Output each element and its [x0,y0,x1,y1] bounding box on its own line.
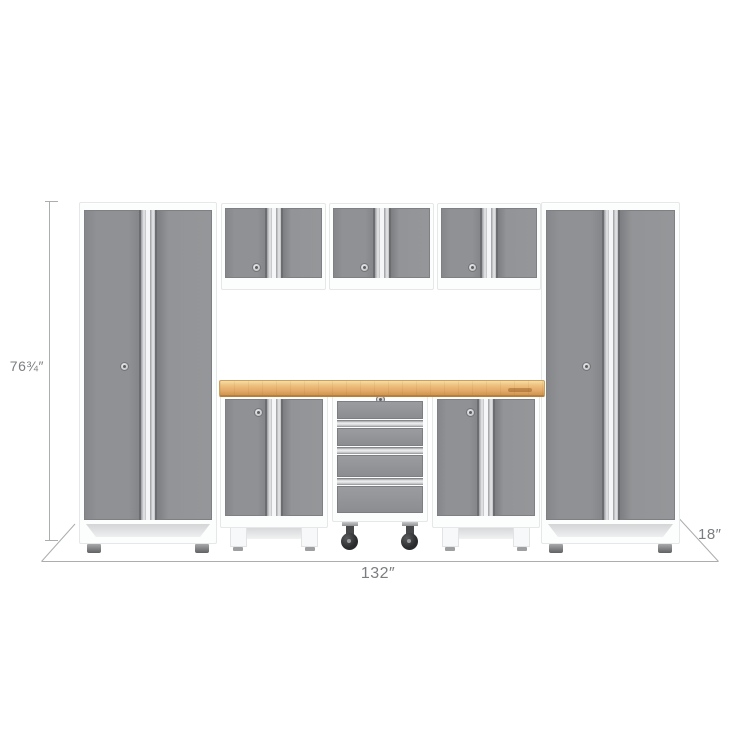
drawer-handle-bar [337,447,423,454]
tall-locker-right [541,202,680,553]
wall-cabinet-2 [329,203,434,290]
width-dimension-label: 132″ [338,565,418,583]
drawer-face-2 [337,428,423,446]
cabinet-leg [230,528,247,547]
leveling-foot [87,544,101,553]
door-handles [265,399,283,516]
right-door [283,399,323,516]
caster-wheel-tire [341,533,358,550]
wall-cabinet-1 [221,203,326,290]
toe-kick-shadow [86,524,210,537]
right-door [498,208,537,278]
door-handles [139,210,157,520]
caster-wheel [339,522,361,550]
garage-cabinet-set-diagram: 76¾″ 132″ 18″ [0,0,755,755]
leveling-foot [658,544,672,553]
benchtop-logo-mark [508,388,532,392]
cabinet-leg [442,528,459,547]
base-cabinet-left [220,394,328,552]
right-door [283,208,323,278]
left-door [546,210,602,520]
toe-kick-shadow [548,524,673,537]
cabinet-leg [301,528,318,547]
depth-leader-left [42,524,76,562]
leveling-foot [517,547,527,551]
wall-cabinet-doors [441,208,537,278]
drawer-handle-bar [337,420,423,427]
door-handles [265,208,283,278]
door-handles [602,210,620,520]
locker-doors [84,210,212,520]
door-handles [373,208,391,278]
leveling-foot [445,547,455,551]
caster-wheel [399,522,421,550]
cabinet-leg [513,528,530,547]
left-door [84,210,139,520]
leveling-foot [549,544,563,553]
caster-wheel-tire [401,533,418,550]
drawer-face-3 [337,455,423,477]
right-door [495,399,535,516]
door-handles [480,208,498,278]
leveling-foot [305,547,315,551]
wall-cabinet-doors [225,208,322,278]
drawer-handle-bar [337,478,423,485]
drawer-stack [337,401,423,513]
leveling-foot [233,547,243,551]
lock-icon [120,362,129,371]
depth-dimension-label: 18″ [698,526,742,543]
bamboo-worktop [219,380,545,397]
lock-icon [468,263,477,272]
right-door [157,210,212,520]
height-dimension-label: 76¾″ [6,358,44,374]
door-handles [477,399,495,516]
right-door [391,208,431,278]
wall-cabinet-3 [437,203,541,290]
leveling-foot [195,544,209,553]
drawer-face-1 [337,401,423,419]
base-cabinet-doors [437,399,535,516]
tall-locker-left [79,202,217,553]
base-cabinet-doors [225,399,323,516]
rolling-tool-cart [332,394,428,550]
base-cabinet-right [432,394,540,552]
drawer-face-4 [337,486,423,513]
right-door [620,210,676,520]
wall-cabinet-doors [333,208,430,278]
locker-doors [546,210,675,520]
wood-grain [220,381,544,395]
height-dimension-line [45,202,58,541]
